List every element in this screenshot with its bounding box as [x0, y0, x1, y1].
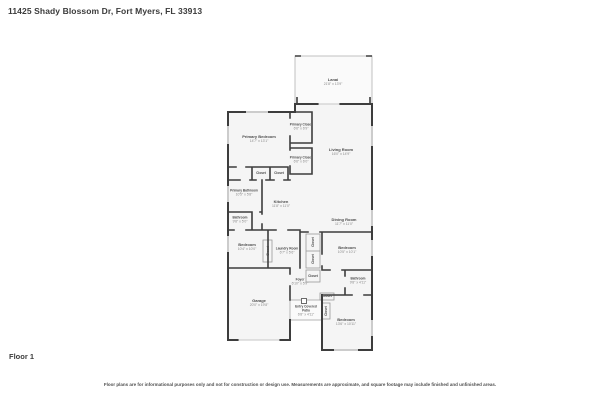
floor-label: Floor 1	[9, 352, 34, 361]
floorplan-drawing	[0, 0, 600, 400]
floorplan-page: { "header": { "title": "11425 Shady Blos…	[0, 0, 600, 400]
disclaimer-text: Floor plans are for informational purpos…	[0, 382, 600, 387]
lanai-outline	[295, 56, 372, 104]
entry-door-icon	[301, 298, 307, 304]
